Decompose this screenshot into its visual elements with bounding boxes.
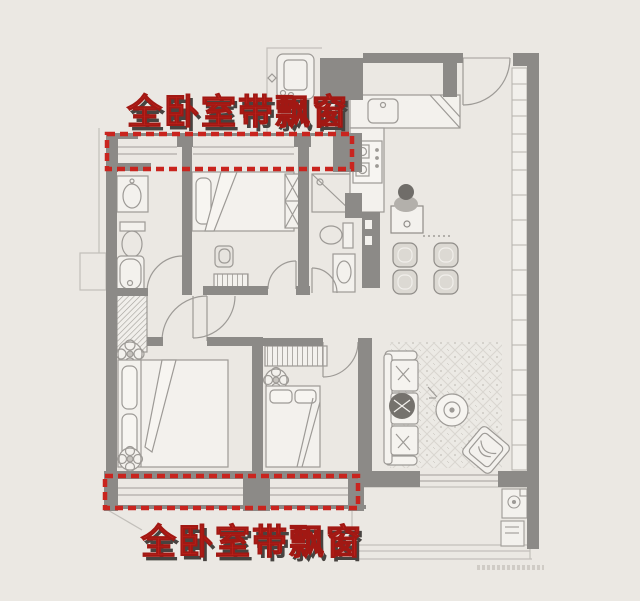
bay-window-label-top: 全卧室带飘窗 (127, 84, 349, 135)
bedroom-top-door-arc (268, 261, 296, 289)
bathroom-main (117, 176, 148, 292)
storage-cabinets (512, 68, 527, 470)
toilet-icon (320, 223, 353, 248)
person-icon (394, 184, 418, 212)
plant-icon (389, 393, 415, 419)
dining (391, 184, 458, 294)
living-room (384, 342, 511, 475)
fridge-icon (362, 212, 380, 288)
dresser-icon (265, 346, 327, 366)
bathroom-second (312, 174, 355, 292)
desk-chair-icon (214, 246, 248, 288)
dining-chairs (393, 243, 458, 294)
balcony-cabinet-icon (501, 521, 524, 546)
bedroom-top (192, 172, 300, 288)
hallway-door-arc (193, 296, 235, 338)
toilet-icon (120, 222, 145, 257)
kitchen-counter (350, 95, 460, 128)
bedroom-left-door-arc (162, 296, 207, 341)
balcony-sink-icon (502, 489, 527, 518)
bedroom-bottom (264, 346, 328, 467)
bay-window-highlight-bottom (105, 476, 358, 508)
watermark (477, 565, 544, 570)
bathroom-main-door-arc (147, 256, 183, 292)
wardrobe-icon (285, 174, 300, 228)
sink-icon (117, 176, 148, 212)
bedroom-bottom-door-arc (323, 342, 358, 377)
bathtub-icon (117, 256, 144, 292)
bay-window-label-bottom: 全卧室带飘窗 (141, 514, 363, 565)
bedroom-left (116, 294, 228, 472)
floorplan-screenshot: 全卧室带飘窗 全卧室带飘窗 (0, 0, 640, 601)
entry-door-arc (463, 58, 510, 105)
